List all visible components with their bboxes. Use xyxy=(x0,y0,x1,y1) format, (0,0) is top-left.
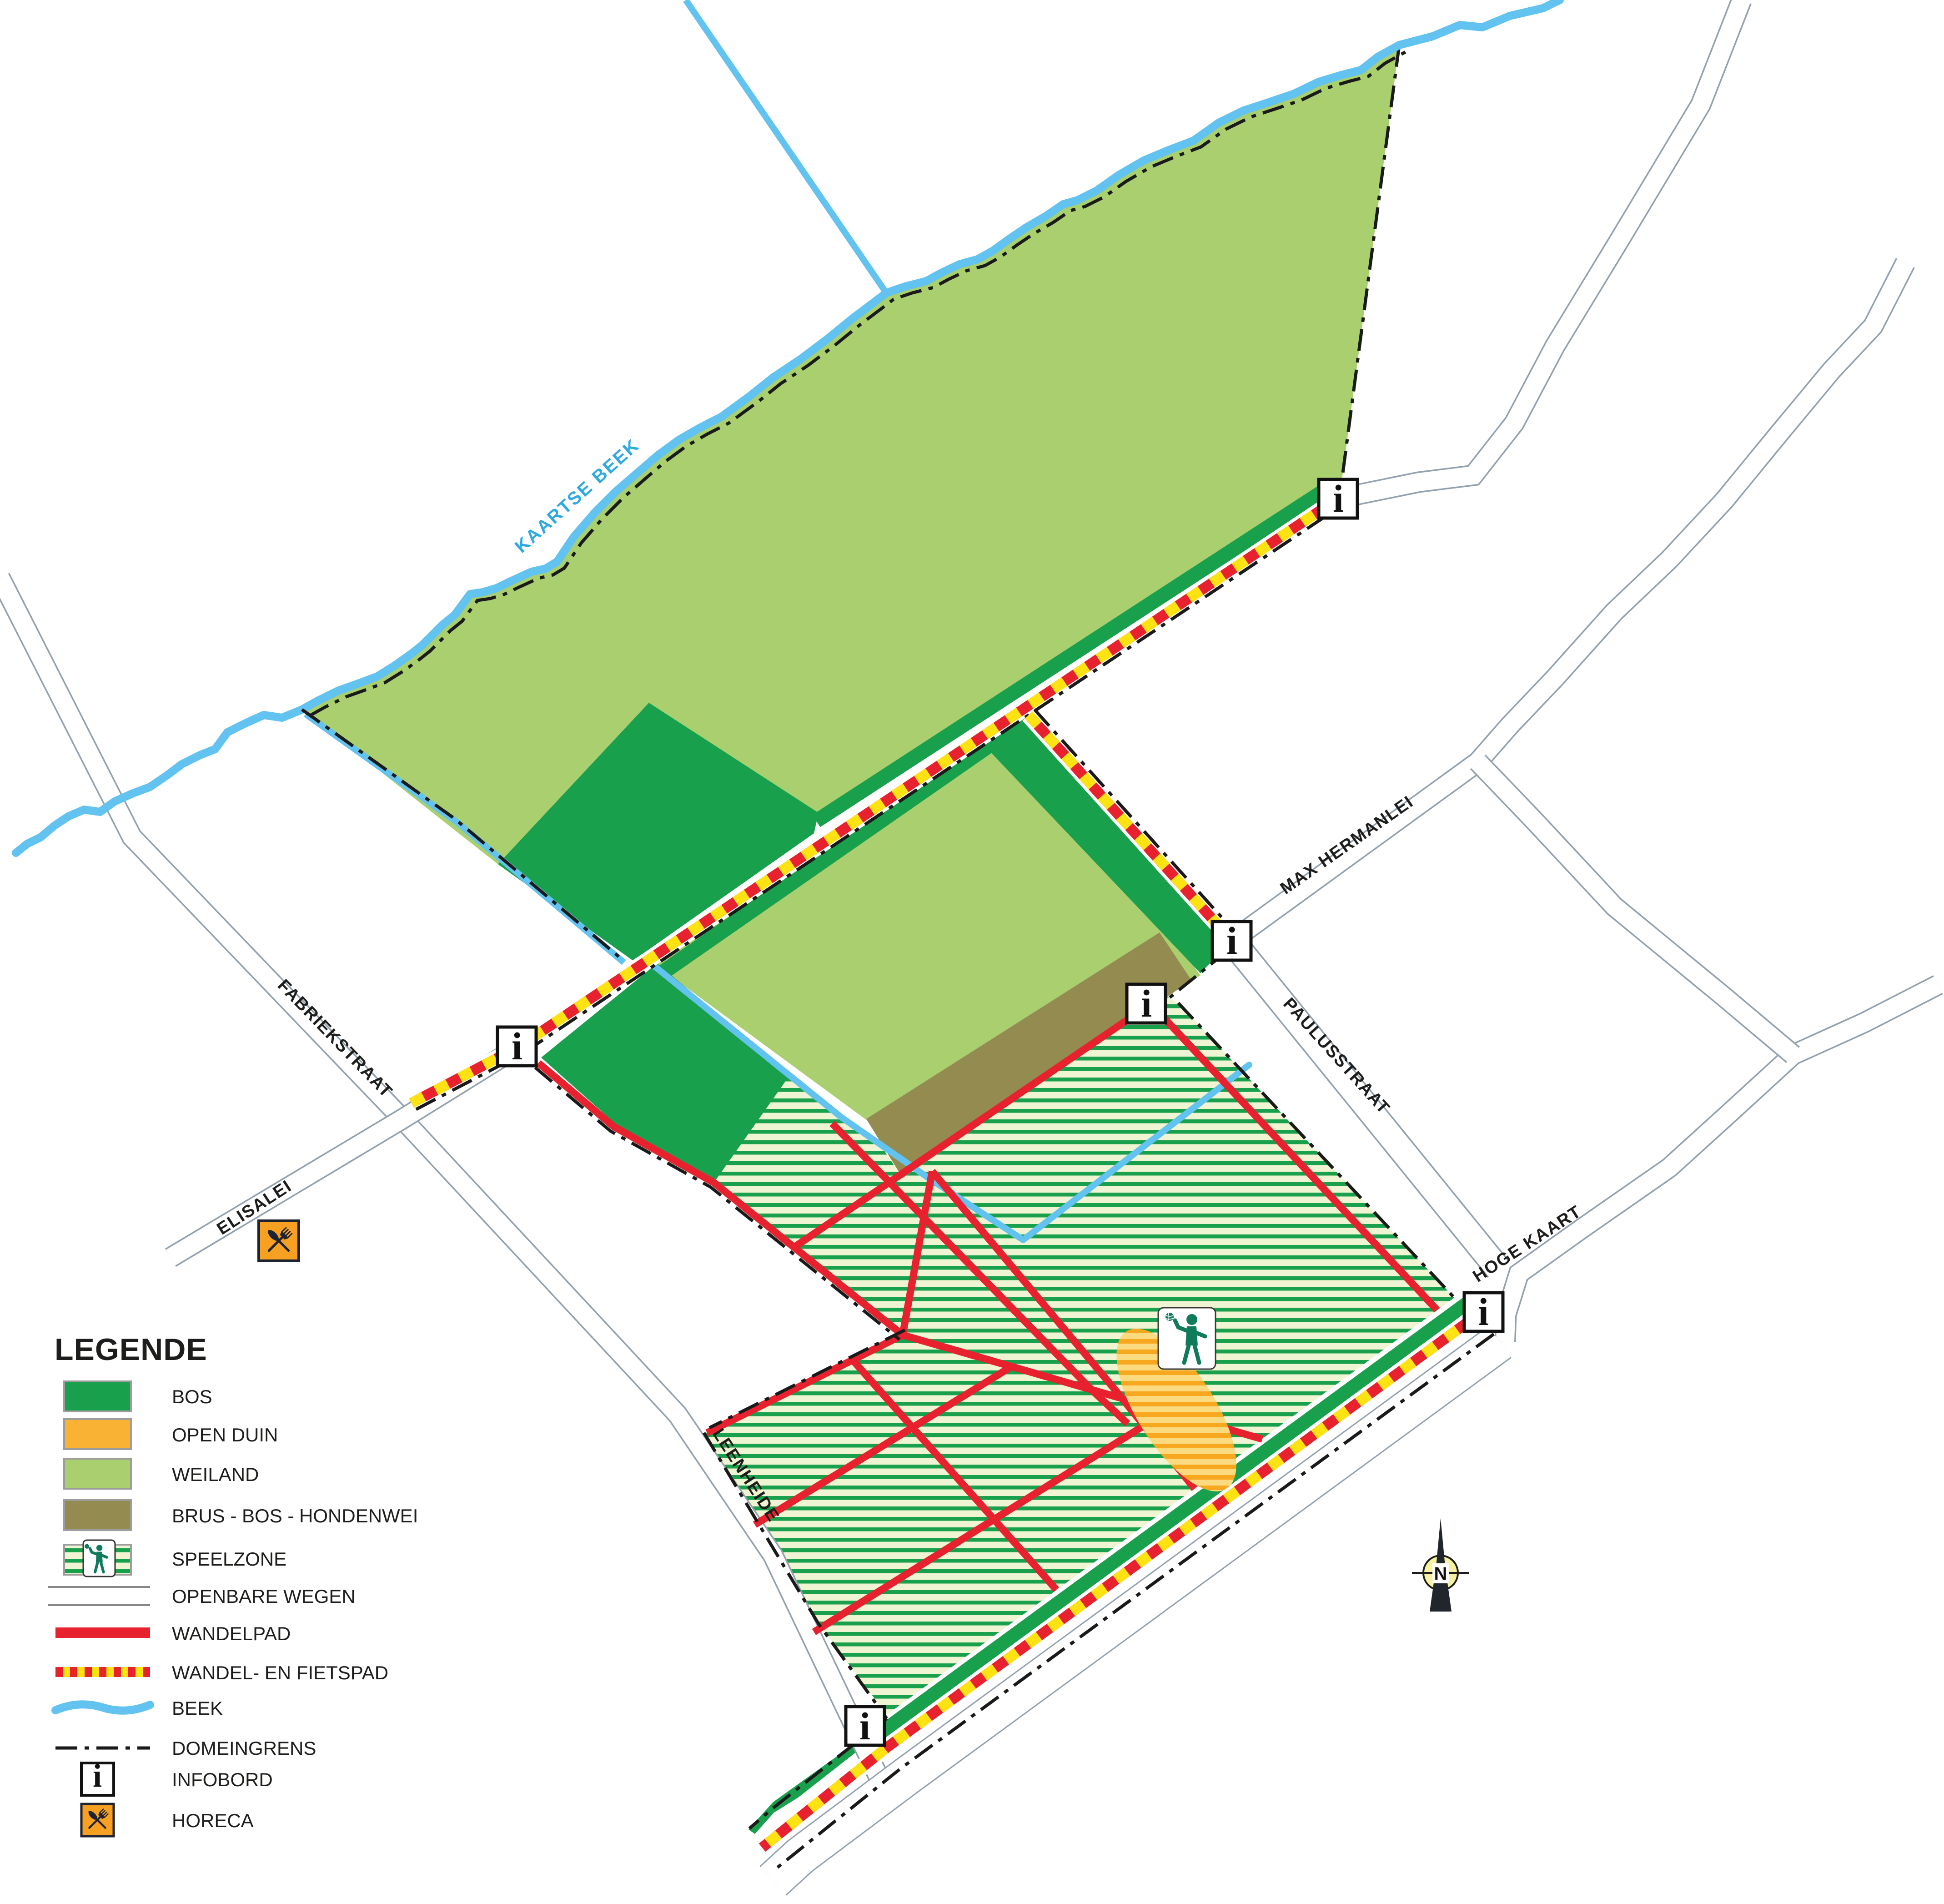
svg-text:DOMEINGRENS: DOMEINGRENS xyxy=(172,1738,316,1759)
svg-text:i: i xyxy=(1226,919,1237,962)
svg-text:BOS: BOS xyxy=(172,1386,212,1407)
svg-text:BEEK: BEEK xyxy=(172,1697,223,1719)
svg-text:i: i xyxy=(1478,1290,1489,1334)
svg-text:OPEN DUIN: OPEN DUIN xyxy=(172,1424,278,1446)
svg-text:OPENBARE WEGEN: OPENBARE WEGEN xyxy=(172,1586,356,1607)
svg-text:i: i xyxy=(512,1024,522,1068)
svg-text:LEGENDE: LEGENDE xyxy=(55,1332,207,1367)
svg-text:HORECA: HORECA xyxy=(172,1810,254,1831)
svg-text:BRUS - BOS - HONDENWEI: BRUS - BOS - HONDENWEI xyxy=(172,1505,418,1526)
svg-text:N: N xyxy=(1434,1564,1447,1584)
svg-text:i: i xyxy=(859,1704,870,1748)
svg-text:WEILAND: WEILAND xyxy=(172,1464,259,1485)
svg-text:i: i xyxy=(93,1758,102,1794)
svg-text:SPEELZONE: SPEELZONE xyxy=(172,1548,286,1570)
svg-text:i: i xyxy=(1141,982,1152,1025)
svg-text:WANDELPAD: WANDELPAD xyxy=(172,1623,291,1644)
svg-text:WANDEL- EN FIETSPAD: WANDEL- EN FIETSPAD xyxy=(172,1662,388,1683)
svg-text:INFOBORD: INFOBORD xyxy=(172,1769,273,1790)
svg-text:i: i xyxy=(1333,477,1344,520)
